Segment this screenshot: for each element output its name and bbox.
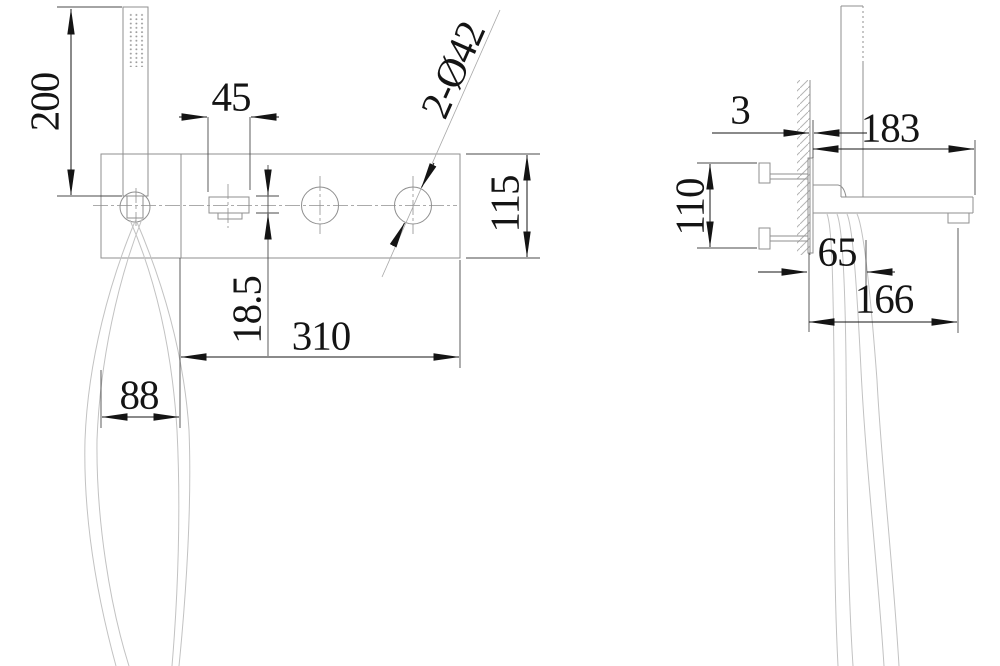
hose-strand	[827, 214, 838, 666]
dim-label-reach: 183	[861, 108, 920, 149]
hose-strand	[837, 214, 853, 666]
front-view-geometry	[101, 7, 460, 258]
mounting-plate-front	[101, 154, 460, 258]
dim-label-handle-width: 45	[212, 77, 251, 118]
mixer-handle-notch	[218, 213, 242, 219]
shower-spray-face-dots	[127, 13, 146, 67]
technical-drawing-canvas: 200 45 2-Ø42 115 18.5 310 88 3 183 110 6…	[0, 0, 1000, 666]
shower-hose-front	[85, 219, 190, 666]
dim-label-plate-height: 115	[485, 176, 526, 233]
dim-label-handle-height: 18.5	[227, 276, 268, 344]
dim-label-shower-height: 200	[25, 73, 66, 132]
shower-holder-socket	[127, 196, 143, 218]
hose-strand	[136, 220, 190, 666]
hose-strand	[97, 219, 142, 666]
dim-label-mounting-height: 110	[670, 179, 711, 236]
mixer-handle-front	[209, 197, 249, 213]
leader-arrow-lower	[393, 223, 405, 246]
mounting-lug-bottom	[759, 228, 770, 249]
spout-outlet-nozzle	[948, 213, 969, 223]
dim-label-plate-width: 310	[292, 316, 351, 357]
dim-label-shower-offset: 65	[818, 232, 857, 273]
leader-arrow-upper	[422, 163, 435, 188]
mounting-lug-top	[759, 163, 770, 183]
drawing-linework	[0, 0, 1000, 666]
dim-label-plate-thickness: 3	[730, 90, 750, 131]
hose-strand	[130, 220, 179, 666]
dim-label-spout-projection: 166	[855, 279, 914, 320]
hose-strand	[85, 219, 136, 666]
dim-label-holder-offset: 88	[120, 375, 159, 416]
